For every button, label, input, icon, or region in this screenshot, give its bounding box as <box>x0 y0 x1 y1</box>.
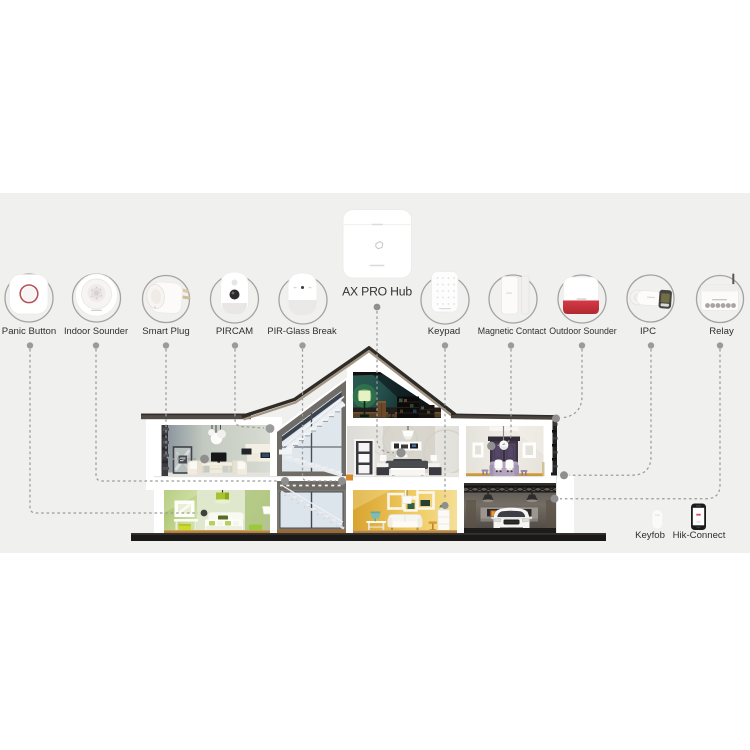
svg-text:Relay: Relay <box>709 326 734 337</box>
svg-text:Keyfob: Keyfob <box>635 530 665 541</box>
svg-text:Indoor Sounder: Indoor Sounder <box>64 326 128 336</box>
svg-text:AX PRO Hub: AX PRO Hub <box>342 285 412 299</box>
svg-text:Keypad: Keypad <box>428 326 461 337</box>
svg-text:PIRCAM: PIRCAM <box>216 326 253 337</box>
svg-text:Hik-Connect: Hik-Connect <box>673 530 726 541</box>
svg-text:Magnetic Contact: Magnetic Contact <box>478 326 547 336</box>
svg-text:PIR-Glass Break: PIR-Glass Break <box>267 326 337 336</box>
svg-text:Panic Button: Panic Button <box>2 326 56 337</box>
svg-text:Outdoor Sounder: Outdoor Sounder <box>549 326 617 336</box>
svg-text:IPC: IPC <box>640 326 656 337</box>
svg-text:Smart Plug: Smart Plug <box>142 326 189 337</box>
